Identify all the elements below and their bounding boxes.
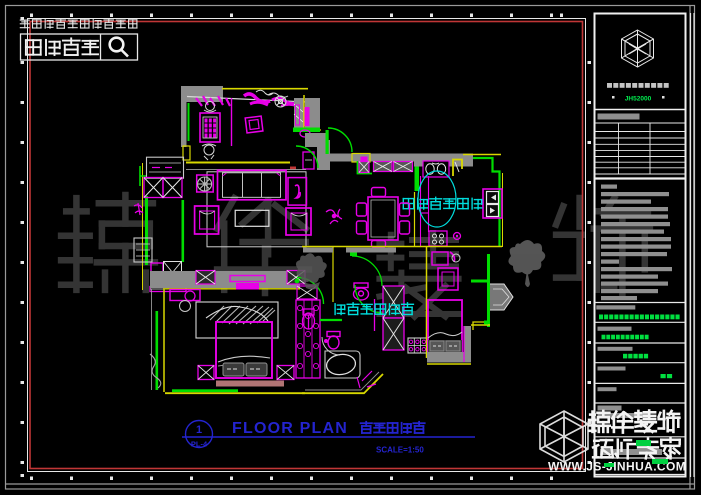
svg-text:SCALE=1:50: SCALE=1:50 — [376, 446, 424, 455]
svg-text:JH52000: JH52000 — [625, 96, 652, 103]
svg-text:1: 1 — [196, 424, 202, 436]
svg-text:FLOOR PLAN: FLOOR PLAN — [232, 420, 348, 437]
svg-text:PL-4: PL-4 — [191, 440, 208, 449]
